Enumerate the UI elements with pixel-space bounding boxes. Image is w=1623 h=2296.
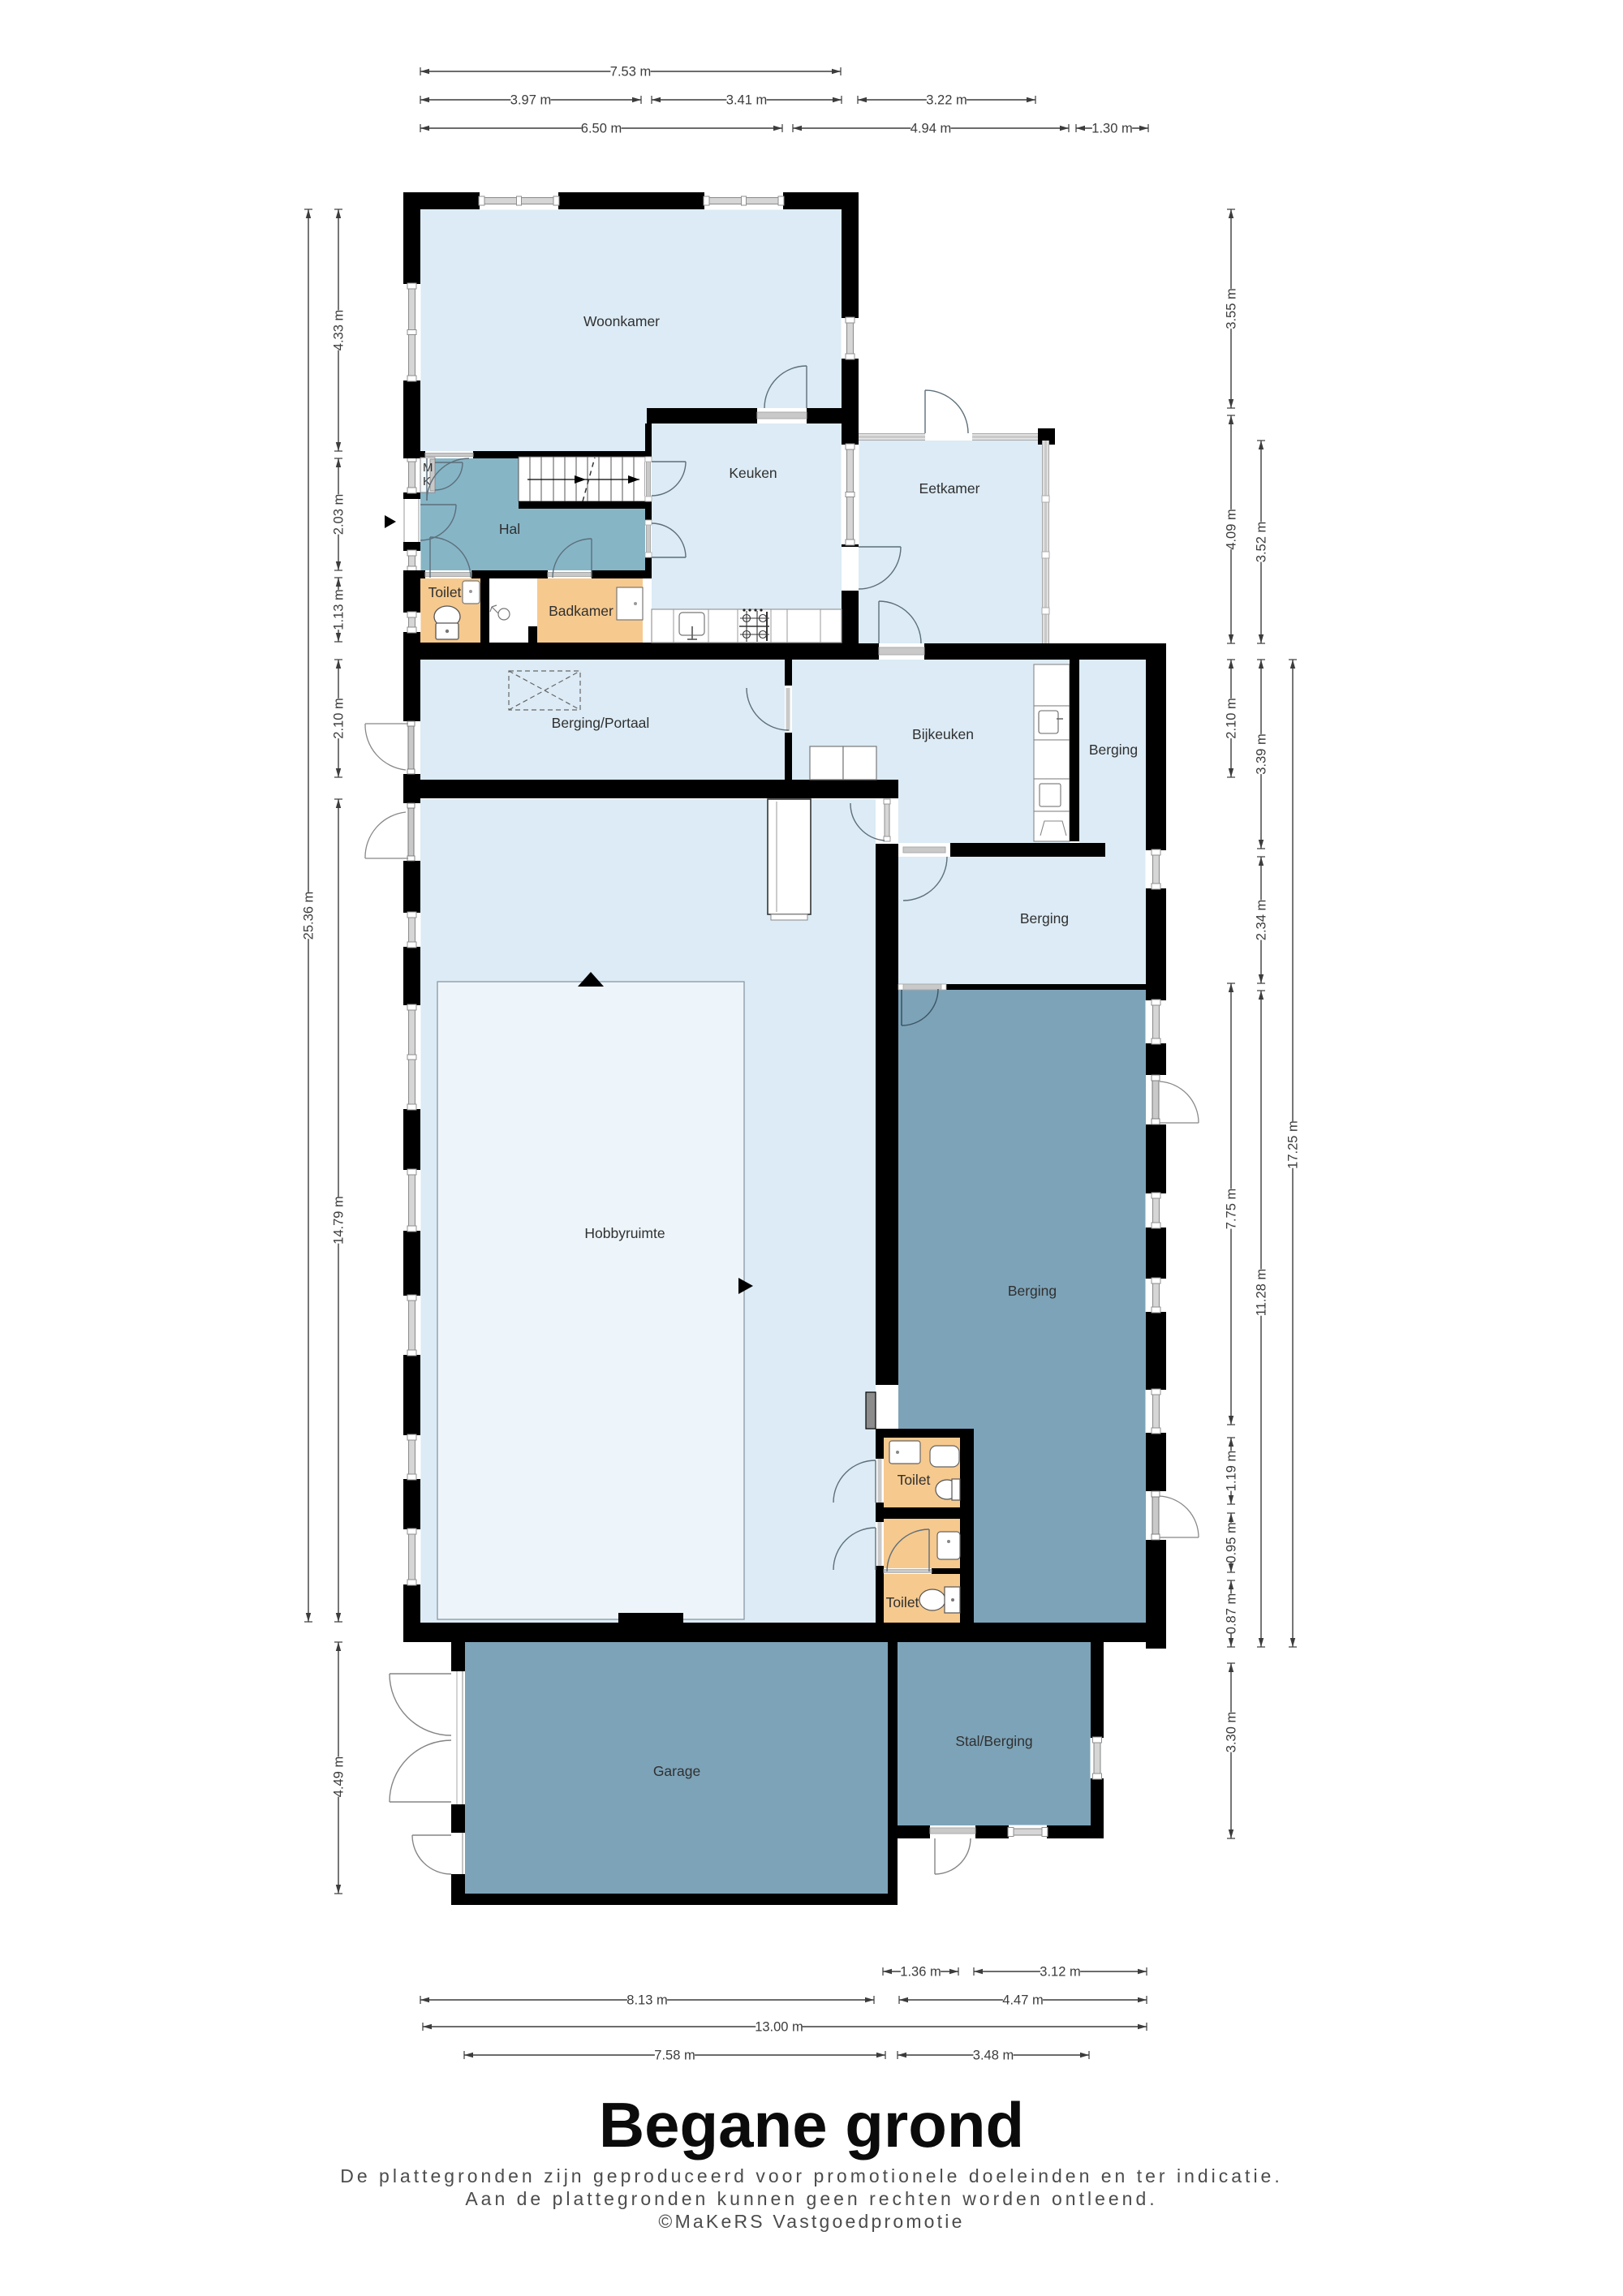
svg-text:M: M xyxy=(423,461,433,475)
svg-text:Toilet: Toilet xyxy=(898,1472,931,1488)
svg-text:Keuken: Keuken xyxy=(729,465,777,481)
svg-text:Toilet: Toilet xyxy=(886,1594,919,1610)
svg-text:Toilet: Toilet xyxy=(428,584,462,600)
svg-text:1.36 m: 1.36 m xyxy=(900,1965,941,1980)
svg-text:3.12 m: 3.12 m xyxy=(1040,1965,1080,1980)
svg-text:Eetkamer: Eetkamer xyxy=(919,480,980,497)
svg-text:4.49 m: 4.49 m xyxy=(332,1756,347,1797)
svg-text:1.19 m: 1.19 m xyxy=(1225,1451,1239,1491)
svg-text:0.95 m: 0.95 m xyxy=(1225,1522,1239,1563)
svg-text:3.48 m: 3.48 m xyxy=(973,2049,1014,2063)
svg-text:8.13 m: 8.13 m xyxy=(626,1993,667,2008)
svg-text:3.52 m: 3.52 m xyxy=(1255,522,1269,562)
svg-text:2.03 m: 2.03 m xyxy=(332,494,347,535)
svg-text:3.97 m: 3.97 m xyxy=(510,93,551,108)
svg-text:11.28 m: 11.28 m xyxy=(1255,1269,1269,1316)
svg-text:Hobbyruimte: Hobbyruimte xyxy=(584,1225,665,1241)
svg-text:Stal/Berging: Stal/Berging xyxy=(955,1733,1032,1749)
svg-text:7.75 m: 7.75 m xyxy=(1225,1189,1239,1229)
svg-text:2.34 m: 2.34 m xyxy=(1255,900,1269,940)
svg-text:14.79 m: 14.79 m xyxy=(332,1196,347,1245)
svg-text:1.30 m: 1.30 m xyxy=(1091,122,1132,136)
svg-text:7.53 m: 7.53 m xyxy=(610,65,651,80)
svg-text:Berging: Berging xyxy=(1008,1283,1057,1299)
svg-text:3.41 m: 3.41 m xyxy=(726,93,767,108)
svg-text:Begane grond: Begane grond xyxy=(599,2089,1024,2161)
svg-text:Berging/Portaal: Berging/Portaal xyxy=(552,715,650,731)
svg-text:4.33 m: 4.33 m xyxy=(332,310,347,350)
svg-text:Badkamer: Badkamer xyxy=(549,603,613,619)
svg-text:De plattegronden zijn geproduc: De plattegronden zijn geproduceerd voor … xyxy=(340,2165,1283,2186)
svg-text:Bijkeuken: Bijkeuken xyxy=(912,726,974,742)
svg-text:13.00 m: 13.00 m xyxy=(755,2020,803,2035)
svg-text:3.55 m: 3.55 m xyxy=(1225,288,1239,329)
svg-text:4.09 m: 4.09 m xyxy=(1225,509,1239,549)
svg-text:7.58 m: 7.58 m xyxy=(654,2049,695,2063)
svg-text:3.22 m: 3.22 m xyxy=(926,93,966,108)
svg-text:Woonkamer: Woonkamer xyxy=(583,313,660,329)
svg-text:Berging: Berging xyxy=(1089,742,1138,758)
svg-text:3.30 m: 3.30 m xyxy=(1225,1712,1239,1752)
svg-text:Berging: Berging xyxy=(1020,910,1069,927)
svg-text:2.10 m: 2.10 m xyxy=(1225,698,1239,738)
svg-text:17.25 m: 17.25 m xyxy=(1286,1120,1301,1169)
svg-text:©MaKeRS Vastgoedpromotie: ©MaKeRS Vastgoedpromotie xyxy=(658,2211,964,2232)
svg-text:4.94 m: 4.94 m xyxy=(911,122,951,136)
svg-text:1.13 m: 1.13 m xyxy=(332,589,347,630)
svg-text:2.10 m: 2.10 m xyxy=(332,698,347,738)
svg-text:6.50 m: 6.50 m xyxy=(581,122,622,136)
svg-text:25.36 m: 25.36 m xyxy=(302,892,316,940)
svg-text:Hal: Hal xyxy=(499,521,520,537)
svg-text:3.39 m: 3.39 m xyxy=(1255,733,1269,774)
svg-text:0.87 m: 0.87 m xyxy=(1225,1593,1239,1634)
svg-text:4.47 m: 4.47 m xyxy=(1002,1993,1043,2008)
svg-text:Aan de plattegronden kunnen ge: Aan de plattegronden kunnen geen rechten… xyxy=(465,2188,1157,2209)
svg-text:Garage: Garage xyxy=(653,1763,700,1779)
